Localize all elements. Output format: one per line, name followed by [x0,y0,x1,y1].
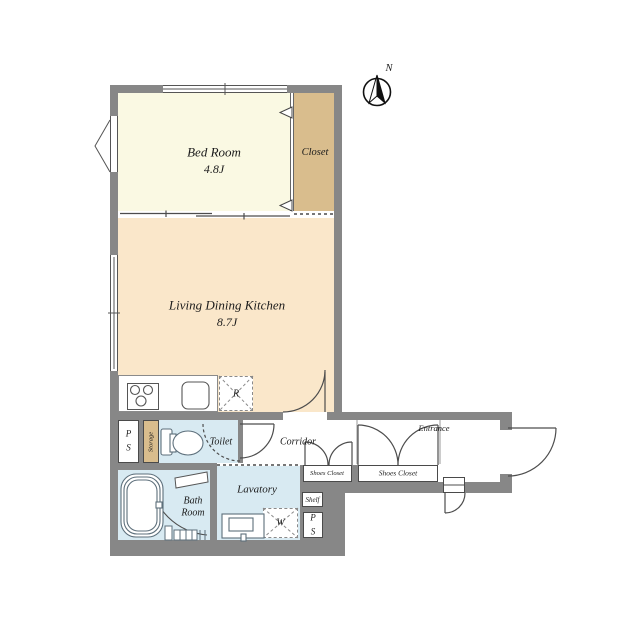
bedroom-ldk-sliding-door [118,211,290,218]
wall-right-main [334,85,342,420]
shoes-closet-b-label: Shoes Closet [379,469,418,478]
shelf-label: Shelf [306,496,320,504]
ldk-left-window [110,255,118,371]
bathroom-label: Bath Room [171,496,215,519]
entrance-step [443,477,465,493]
bedroom-label: Bed Room [187,146,241,161]
wall-entrance-right-top [500,412,512,430]
bedroom-top-window [163,85,287,93]
washer-space-label: W [276,517,284,529]
pipe-space-lower-label: P S [308,512,318,539]
ldk-size: 8.7J [217,316,237,330]
refrigerator-space-label: R [233,388,239,400]
ldk-label: Living Dining Kitchen [169,299,285,314]
ldk-door-opening [283,412,327,420]
lavatory-label: Lavatory [237,484,277,497]
compass-north-label: N [385,63,392,75]
north-compass-icon [364,75,391,106]
wall-toilet-bath-divider [110,463,217,470]
closet-label: Closet [302,147,329,159]
shoes-closet-a-label: Shoes Closet [310,470,344,478]
corridor-label: Corridor [280,436,316,448]
bedroom-size: 4.8J [204,163,224,177]
wall-entrance-bottom [345,482,512,493]
stove [127,383,159,410]
storage-label: Storage [147,431,154,451]
wall-bottom [110,540,345,556]
wall-entrance-right-bottom [500,474,512,493]
floor-plan: Bed Room 4.8J Closet Living Dining Kitch… [0,0,640,640]
entrance-label: Entrance [418,424,449,434]
pipe-space-upper-label: P S [124,428,134,455]
closet-threshold-dashes [294,213,334,215]
lavatory-top-dashes [217,464,300,466]
toilet-label: Toilet [210,436,232,448]
bedroom-left-window [110,116,118,172]
